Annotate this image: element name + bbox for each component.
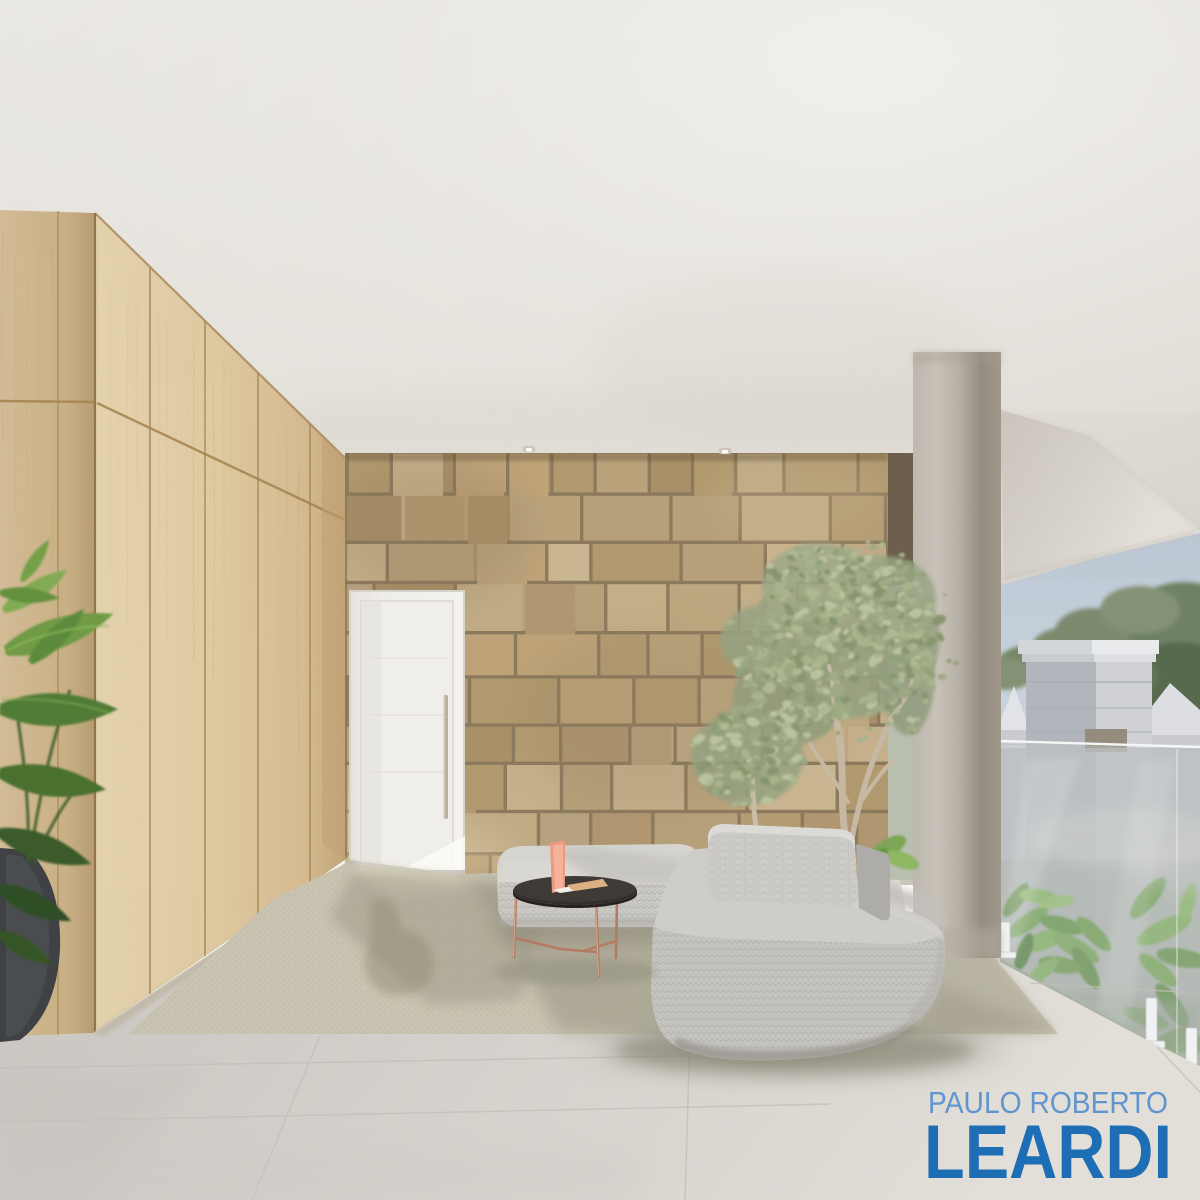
- svg-text:LEARDI: LEARDI: [924, 1110, 1172, 1195]
